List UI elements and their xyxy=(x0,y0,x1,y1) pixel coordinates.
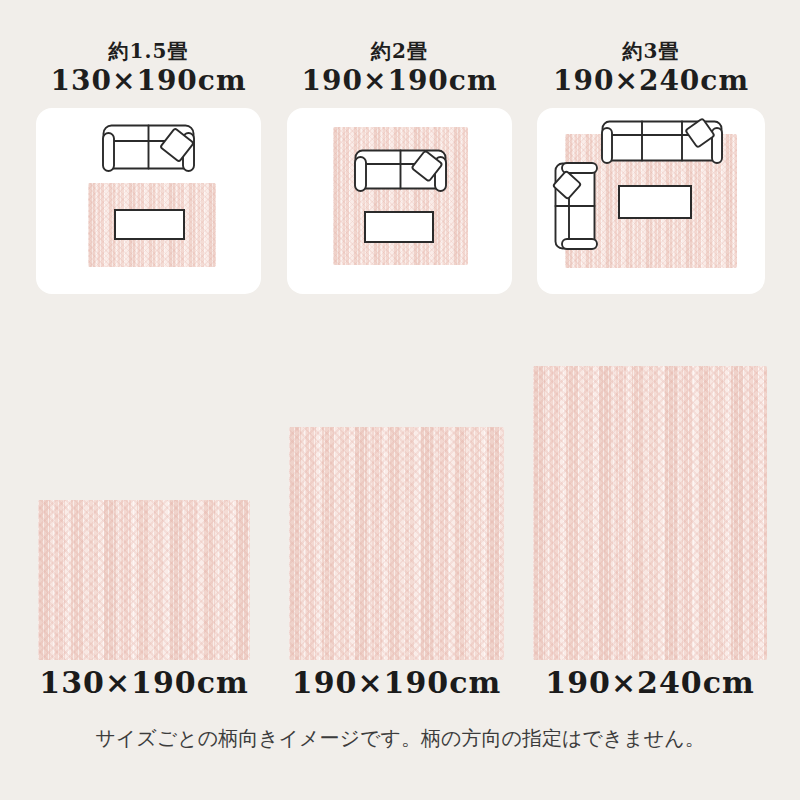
dimension-label: 130×190cm xyxy=(36,67,261,95)
rug-swatch-130x190 xyxy=(38,500,250,660)
low-table-icon xyxy=(618,185,692,219)
dimension-label: 190×190cm xyxy=(287,67,512,95)
room-preview-card-1 xyxy=(36,108,261,294)
sofa-2seat-icon xyxy=(102,124,195,172)
rug-swatch-190x240 xyxy=(533,366,767,660)
room-preview-card-3 xyxy=(537,108,765,294)
tatami-size-label: 約2畳 xyxy=(287,41,512,61)
rug-illustration xyxy=(333,127,468,265)
rug-size-label: 130×190cm xyxy=(38,668,250,698)
rug-size-label: 190×240cm xyxy=(533,668,767,698)
orientation-note: サイズごとの柄向きイメージです。柄の方向の指定はできません。 xyxy=(0,728,800,748)
sofa-2seat-icon xyxy=(102,124,195,172)
sofa-3seat-icon xyxy=(601,120,723,164)
dimension-label: 190×240cm xyxy=(537,67,765,95)
tatami-size-label: 約3畳 xyxy=(537,41,765,61)
sofa-2seat-icon xyxy=(354,149,447,192)
sofa-2seat-icon xyxy=(354,149,447,192)
room-preview-card-2 xyxy=(287,108,512,294)
rug-size-guide: 約1.5畳 約2畳 約3畳 130×190cm 190×190cm 190×24… xyxy=(0,0,800,800)
rug-size-label: 190×190cm xyxy=(289,668,504,698)
sofa-3seat-icon xyxy=(601,120,723,164)
rug-swatch-190x190 xyxy=(289,427,504,660)
sofa-2seat-vertical-icon xyxy=(554,162,598,250)
sofa-2seat-vertical-icon xyxy=(554,162,598,250)
low-table-icon xyxy=(114,209,185,240)
tatami-size-label: 約1.5畳 xyxy=(36,41,261,61)
low-table-icon xyxy=(364,211,434,243)
